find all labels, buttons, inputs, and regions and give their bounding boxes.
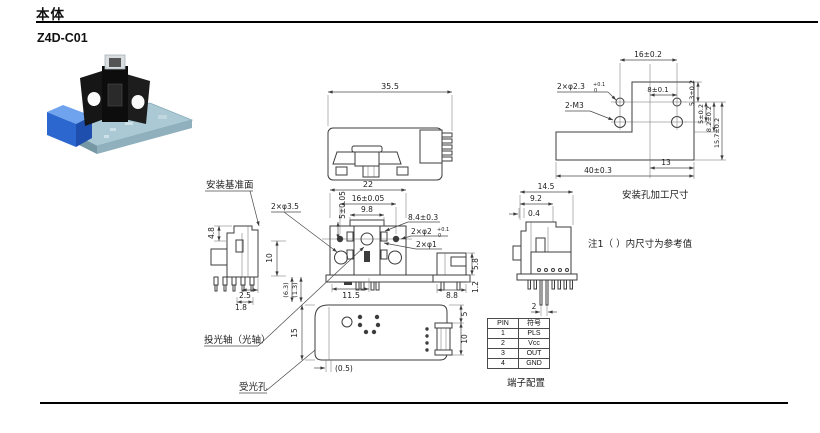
pin-table-header-symbol: 符号 [519, 319, 550, 329]
pin-table-row: 4 GND [488, 359, 550, 369]
top-view: 35.5 [328, 82, 452, 180]
dim-5-3: 5.3±0.2 [688, 80, 696, 106]
dim-8-2: 8.2±0.2 [705, 106, 713, 132]
dim-1-8: 1.8 [235, 303, 247, 312]
bottom-view: 15 (0.5) 5 10 [290, 305, 469, 373]
pin-table-header-pin: PIN [488, 319, 519, 329]
dim-1-2: 1.2 [471, 281, 480, 293]
label-2xphi23: 2×φ2.3 [557, 82, 585, 91]
mounting-hole-view: 16±0.2 8±0.1 2×φ2.3 +0.1 0 2-M3 5.3±0.2 … [556, 50, 726, 201]
label-receiver-hole: 受光孔 [239, 381, 268, 393]
label-emitter-axis: 投光轴（光轴） [204, 334, 271, 346]
label-2-m3: 2-M3 [565, 101, 584, 110]
dim-front-width: 22 [363, 180, 373, 189]
dim-0-4: 0.4 [528, 209, 540, 218]
dim-top-width: 35.5 [381, 82, 399, 91]
dim-5-8: 5.8 [471, 258, 480, 270]
dim-8-8: 8.8 [446, 291, 458, 300]
product-photo [47, 55, 192, 154]
dim-ref-0-5: (0.5) [335, 364, 353, 373]
label-mounting-ref-surface: 安装基准面 [206, 179, 254, 191]
pin-table-row: 1 PLS [488, 329, 550, 339]
right-side-view: 14.5 9.2 0.4 [509, 182, 577, 316]
dim-5-02: 5±0.2 [697, 104, 705, 124]
dim-front-height: 5±0.05 [338, 191, 347, 219]
front-view: 22 16±0.05 9.8 5±0.05 8.4±0.3 2×φ2 +0.1 … [322, 180, 449, 300]
pin-table: PIN 符号 1 PLS 2 Vcc 3 OUT 4 GND [487, 318, 550, 369]
dim-8-4: 8.4±0.3 [408, 213, 438, 222]
dim-40: 40±0.3 [584, 166, 612, 175]
datasheet-page: 本体 Z4D-C01 [0, 0, 820, 433]
dim-ref-1-3: (1.3) [291, 282, 299, 297]
dim-2-5: 2.5 [239, 291, 251, 300]
caption-terminal-config: 端子配置 [507, 377, 545, 389]
dimension-drawing: 35.5 22 [0, 0, 820, 433]
dim-15-7: 15.7±0.2 [713, 118, 721, 148]
dim-11-5: 11.5 [342, 291, 360, 300]
note-1: 注1（ ）内尺寸为参考值 [588, 238, 693, 250]
dim-hole-pitch: 16±0.05 [352, 194, 385, 203]
caption-mounting-holes: 安装孔加工尺寸 [622, 189, 689, 201]
dim-4-8: 4.8 [207, 227, 216, 239]
dim-ref-6-3: (6.3) [282, 282, 290, 297]
dim-right-10: 10 [460, 334, 469, 344]
label-2xphi1: 2×φ1 [416, 240, 437, 249]
dim-13: 13 [661, 158, 671, 167]
dim-15: 15 [290, 328, 299, 338]
phi2-hole-right [393, 236, 399, 242]
dim-10: 10 [265, 253, 274, 263]
page-bottom-rule [40, 402, 788, 404]
label-2xphi35: 2×φ3.5 [271, 202, 299, 211]
label-2xphi23-tol-bot: 0 [594, 88, 597, 94]
dim-8-01: 8±0.1 [647, 86, 668, 94]
connector-side-view: 8.8 5.8 1.2 [433, 253, 480, 300]
photo-sensor-housing [80, 55, 150, 126]
dim-cap-width: 9.8 [361, 205, 373, 214]
dim-right-5: 5 [460, 311, 469, 316]
pin-table-header-row: PIN 符号 [488, 319, 550, 329]
dim-16-02: 16±0.2 [634, 50, 662, 59]
dim-14-5: 14.5 [538, 182, 555, 191]
dim-9-2: 9.2 [530, 194, 542, 203]
dim-2: 2 [532, 302, 537, 311]
label-2xphi2: 2×φ2 [411, 227, 432, 236]
pin-table-row: 2 Vcc [488, 339, 550, 349]
pin-table-row: 3 OUT [488, 349, 550, 359]
